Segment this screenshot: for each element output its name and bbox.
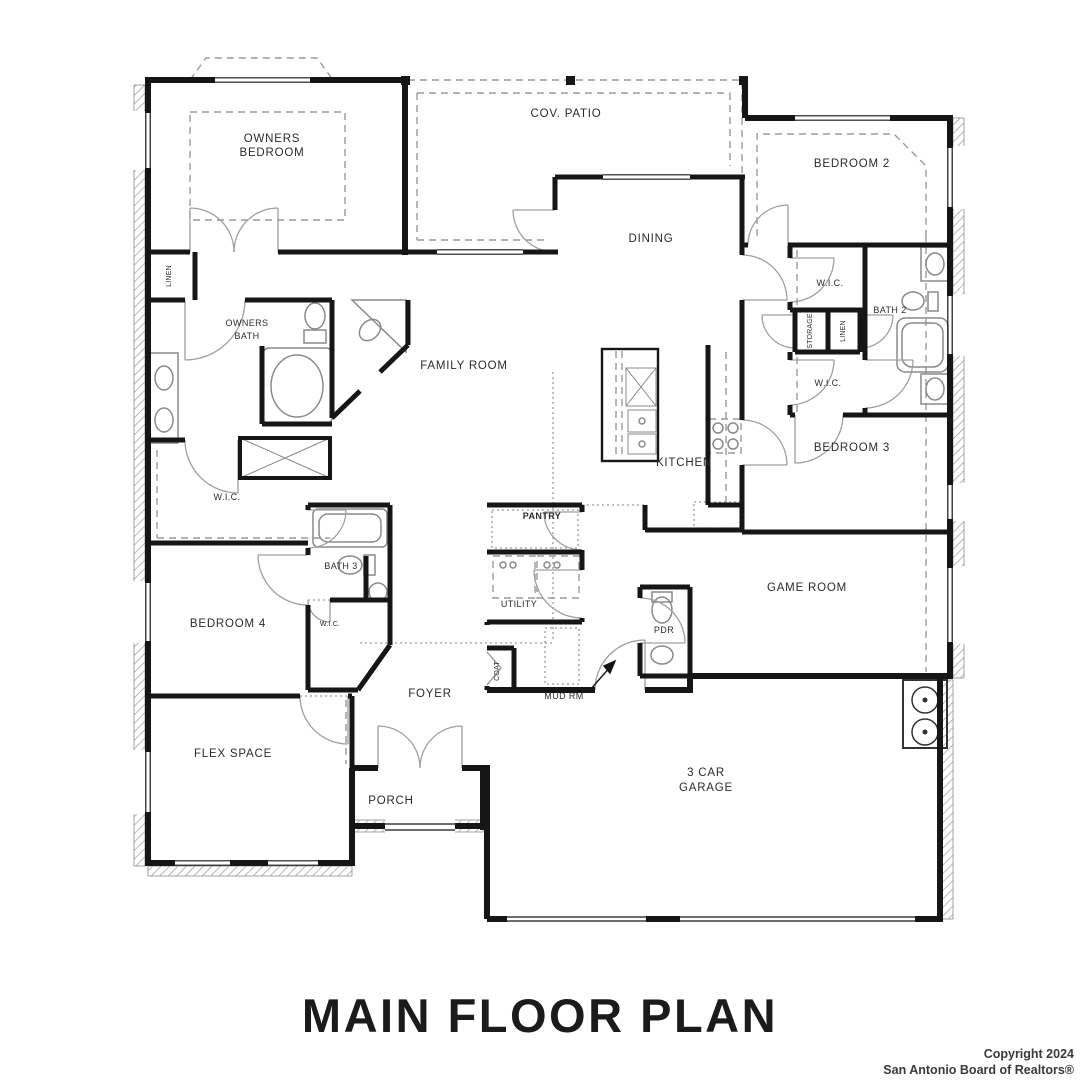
kitchen-sink	[628, 410, 656, 432]
room-label-garage-1: 3 CAR	[687, 767, 725, 779]
room-label-porch: PORCH	[368, 795, 414, 807]
floor-plan-drawing: OWNERS BEDROOM COV. PATIO BEDROOM 2 DINI…	[0, 0, 1080, 1080]
kitchen-island	[602, 349, 658, 461]
copyright-line2: San Antonio Board of Realtors®	[883, 1062, 1074, 1078]
room-label-dining: DINING	[628, 233, 673, 245]
room-label-owners-bedroom-2: BEDROOM	[239, 147, 304, 159]
mud-rm-arrow	[590, 661, 615, 690]
room-label-wic-bedroom2-lower: W.I.C.	[815, 378, 842, 388]
room-label-owners-bath-2: BATH	[235, 331, 260, 341]
room-label-wic-bedroom2-upper: W.I.C.	[817, 278, 844, 288]
room-label-mud-rm: MUD RM	[544, 691, 583, 701]
room-label-bath2: BATH 2	[873, 305, 906, 315]
room-label-foyer: FOYER	[408, 688, 452, 700]
owners-toilet	[305, 303, 325, 329]
room-label-wic-bedroom4: W.I.C.	[320, 621, 340, 628]
exterior-walls	[145, 77, 953, 919]
room-label-utility: UTILITY	[501, 599, 537, 609]
room-label-owners-bedroom-1: OWNERS	[244, 133, 301, 145]
interior-walls	[148, 177, 950, 768]
owners-shower-glass	[240, 438, 330, 478]
room-label-cov-patio: COV. PATIO	[530, 108, 601, 120]
owners-wc-shower	[352, 300, 406, 352]
page-title: MAIN FLOOR PLAN	[0, 988, 1080, 1043]
patio-posts	[401, 76, 748, 85]
floor-plan-page: OWNERS BEDROOM COV. PATIO BEDROOM 2 DINI…	[0, 0, 1080, 1080]
owners-tub	[263, 348, 332, 424]
room-label-bath3: BATH 3	[324, 561, 357, 571]
bath2-sink-top	[921, 247, 949, 281]
dotted-opening-lines	[300, 372, 740, 696]
copyright-notice: Copyright 2024 San Antonio Board of Real…	[883, 1046, 1074, 1079]
room-label-game-room: GAME ROOM	[767, 582, 847, 594]
range-burners	[713, 423, 723, 433]
room-label-storage: STORAGE	[807, 313, 814, 349]
windows	[146, 78, 952, 921]
room-label-family-room: FAMILY ROOM	[420, 360, 508, 372]
garage-door-1	[507, 917, 646, 921]
room-label-flex-space: FLEX SPACE	[194, 748, 272, 760]
room-label-pantry: PANTRY	[523, 511, 561, 521]
room-label-coat: COAT	[494, 661, 501, 681]
room-label-bedroom3: BEDROOM 3	[814, 442, 890, 454]
pdr-sink	[651, 646, 673, 664]
copyright-line1: Copyright 2024	[883, 1046, 1074, 1062]
room-label-bedroom2: BEDROOM 2	[814, 158, 890, 170]
floor-plan: OWNERS BEDROOM COV. PATIO BEDROOM 2 DINI…	[0, 0, 1080, 1080]
room-label-kitchen: KITCHEN	[656, 457, 712, 469]
dashed-lines	[157, 58, 926, 764]
room-label-wic-owners: W.I.C.	[214, 492, 241, 502]
room-label-pdr: PDR	[654, 625, 674, 635]
room-label-linen-owners: LINEN	[166, 265, 173, 287]
garage-door-2	[680, 917, 915, 921]
room-label-owners-bath-1: OWNERS	[226, 318, 269, 328]
room-label-linen-bath2: LINEN	[840, 320, 847, 342]
room-label-garage-2: GARAGE	[679, 782, 733, 794]
room-label-bedroom4: BEDROOM 4	[190, 618, 266, 630]
